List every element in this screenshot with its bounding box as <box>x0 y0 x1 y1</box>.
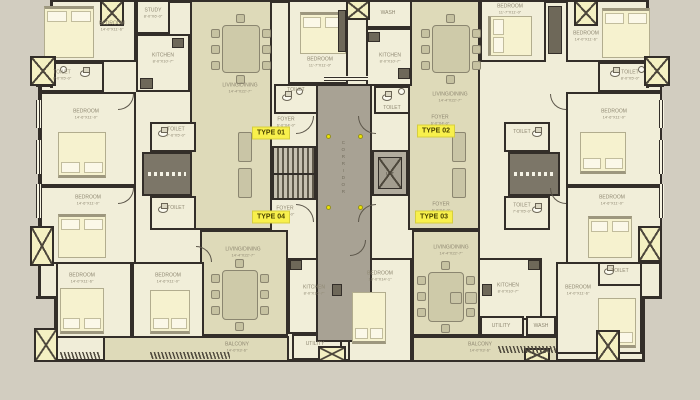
shaft-vent <box>596 330 620 362</box>
room-label-bedroom: BEDROOM14'-6"X11'-0" <box>599 194 625 205</box>
chair <box>262 61 271 70</box>
chair <box>211 274 220 283</box>
light-dot <box>358 134 363 139</box>
closet <box>338 10 346 52</box>
chair <box>260 290 269 299</box>
room-label-toilet: TOILET <box>287 87 304 93</box>
window <box>659 184 664 218</box>
bed <box>488 16 532 56</box>
corridor-entrance-window <box>324 76 368 81</box>
room-label-toilet: TOILET8'-0"X5'-0" <box>621 69 640 80</box>
chair <box>441 324 450 333</box>
armchair <box>450 292 462 304</box>
armchair <box>465 292 477 304</box>
room-label-bedroom: BEDROOM14'-0"X11'-6" <box>99 20 125 31</box>
room-label-toilet: TOILET <box>513 129 530 135</box>
dining-table <box>222 270 258 320</box>
chair <box>421 61 430 70</box>
room-label-study: STUDY8'-0"X6'-0" <box>144 7 163 18</box>
sofa <box>238 132 252 162</box>
room-label-bedroom: BEDROOM11'-7"X11'-0" <box>497 3 523 14</box>
room-label-toilet: TOILET7'-6"X5'-0" <box>167 126 186 137</box>
staircase <box>272 146 316 200</box>
bed <box>44 6 94 58</box>
chair <box>211 45 220 54</box>
counter <box>482 284 492 296</box>
light-dot <box>358 205 363 210</box>
room-label-living: LIVING/DINING14'-4"X22'-7" <box>225 246 260 257</box>
counter <box>368 32 380 42</box>
shaft-vent <box>30 226 54 266</box>
wall-segment <box>642 298 645 362</box>
counter <box>332 284 342 296</box>
chair <box>421 45 430 54</box>
chair <box>472 45 481 54</box>
chair <box>211 29 220 38</box>
dining-table <box>432 25 470 73</box>
room-label-living: LIVING/DINING14'-4"X22'-7" <box>222 82 257 93</box>
window <box>36 184 41 218</box>
room-label-balcony: BALCONY14'-0"X3'-6" <box>468 341 492 352</box>
chair <box>466 276 475 285</box>
bed <box>602 8 650 58</box>
shaft-vent <box>574 0 598 26</box>
sofa <box>238 168 252 198</box>
room-label-bedroom: BEDROOM14'-6"X11'-0" <box>75 194 101 205</box>
sink <box>398 88 405 95</box>
room-label-wash: WASH <box>381 10 396 16</box>
room-label-bedroom: BEDROOM14'-0"X11'-6" <box>565 284 591 295</box>
counter <box>172 38 184 48</box>
chair <box>417 308 426 317</box>
toilet-fixture <box>532 206 542 213</box>
bed <box>58 132 106 178</box>
room-label-toilet: TOILET8'-0"X5'-0" <box>53 69 72 80</box>
corridor-label: CORRIDOR <box>340 140 346 196</box>
type-label-02: TYPE 02 <box>417 125 455 138</box>
light-dot <box>326 205 331 210</box>
type-label-01: TYPE 01 <box>252 127 290 140</box>
shaft-vent <box>346 0 370 20</box>
toilet-fixture <box>610 70 620 77</box>
room-label-bedroom: BEDROOM14'-6"X11'-0" <box>155 272 181 283</box>
room-label-toilet: TOILET <box>167 205 184 211</box>
balcony-railing <box>498 346 556 353</box>
chair <box>260 306 269 315</box>
wall-segment <box>642 296 662 299</box>
counter <box>528 260 540 270</box>
chair <box>446 14 455 23</box>
counter <box>140 78 153 89</box>
balcony-railing <box>60 352 100 359</box>
room-label-balcony: BALCONY14'-0"X3'-6" <box>225 341 249 352</box>
chair <box>211 61 220 70</box>
bed <box>352 292 386 344</box>
window <box>36 100 41 128</box>
wall-segment <box>36 296 56 299</box>
room-label-toilet: TOILET <box>383 105 400 111</box>
bed <box>588 216 632 258</box>
shaft-vent <box>34 328 58 362</box>
room-label-bedroom: BEDROOM10'-0"X14'-1" <box>367 270 393 281</box>
chair <box>235 259 244 268</box>
shaft-vent <box>318 346 346 362</box>
chair <box>260 274 269 283</box>
chair <box>262 29 271 38</box>
chair <box>262 45 271 54</box>
chair <box>211 290 220 299</box>
room-label-bedroom: BEDROOM14'-6"X11'-0" <box>601 108 627 119</box>
counter <box>398 68 410 79</box>
room-label-kitchen: KITCHEN8'-0"X10'-7" <box>152 52 174 63</box>
chair <box>472 61 481 70</box>
notch-bottom-right <box>644 298 664 364</box>
type-label-04: TYPE 04 <box>252 211 290 224</box>
room-label-utility: UTILITY <box>306 341 325 347</box>
counter <box>290 260 302 270</box>
closet <box>548 6 562 54</box>
room-label-bedroom: BEDROOM14'-0"X11'-6" <box>69 272 95 283</box>
balcony-railing <box>150 352 230 359</box>
chair <box>417 276 426 285</box>
bed <box>150 290 190 334</box>
toilet-fixture <box>532 130 542 137</box>
bed <box>580 132 626 174</box>
room-label-kitchen: KITCHEN8'-0"X10'-7" <box>303 284 325 295</box>
room-label-living: LIVING/DINING14'-4"X22'-7" <box>432 91 467 102</box>
floorplan-page: { "type_labels": { "t1": "TYPE 01", "t2"… <box>0 0 700 400</box>
wardrobe-left <box>142 152 192 196</box>
room-label-kitchen: KITCHEN8'-0"X10'-7" <box>497 282 519 293</box>
chair <box>417 292 426 301</box>
bed <box>60 288 104 334</box>
type-label-03: TYPE 03 <box>415 211 453 224</box>
toilet-fixture <box>382 94 392 101</box>
room-label-kitchen: KITCHEN8'-0"X10'-7" <box>379 52 401 63</box>
window <box>659 100 664 128</box>
lift-label: LIFT <box>386 171 394 176</box>
room-label-toilet: TOILET <box>611 268 628 274</box>
chair <box>211 306 220 315</box>
chair <box>236 14 245 23</box>
room-label-utility: UTILITY <box>492 323 511 329</box>
shaft-vent <box>638 226 662 262</box>
room-label-bedroom: BEDROOM11'-7"X11'-0" <box>307 56 333 67</box>
room-label-toilet: TOILET7'-6"X5'-0" <box>513 202 532 213</box>
chair <box>466 308 475 317</box>
window <box>659 140 664 174</box>
bed <box>58 214 106 258</box>
room-label-bedroom: BEDROOM14'-0"X11'-6" <box>573 30 599 41</box>
room-toilet-mid-left-b <box>150 196 196 230</box>
light-dot <box>326 134 331 139</box>
chair <box>235 322 244 331</box>
room-label-living: LIVING/DINING14'-4"X22'-7" <box>433 244 468 255</box>
chair <box>472 29 481 38</box>
chair <box>421 29 430 38</box>
chair <box>441 261 450 270</box>
room-toilet-mid-right-a <box>504 122 550 152</box>
sofa <box>452 168 466 198</box>
chair <box>446 75 455 84</box>
dining-table <box>222 25 260 73</box>
shaft-vent <box>644 56 670 86</box>
room-label-bedroom: BEDROOM14'-6"X11'-0" <box>73 108 99 119</box>
window <box>36 140 41 174</box>
room-label-wash: WASH <box>534 323 549 329</box>
toilet-fixture <box>282 94 292 101</box>
toilet-fixture <box>80 70 90 77</box>
